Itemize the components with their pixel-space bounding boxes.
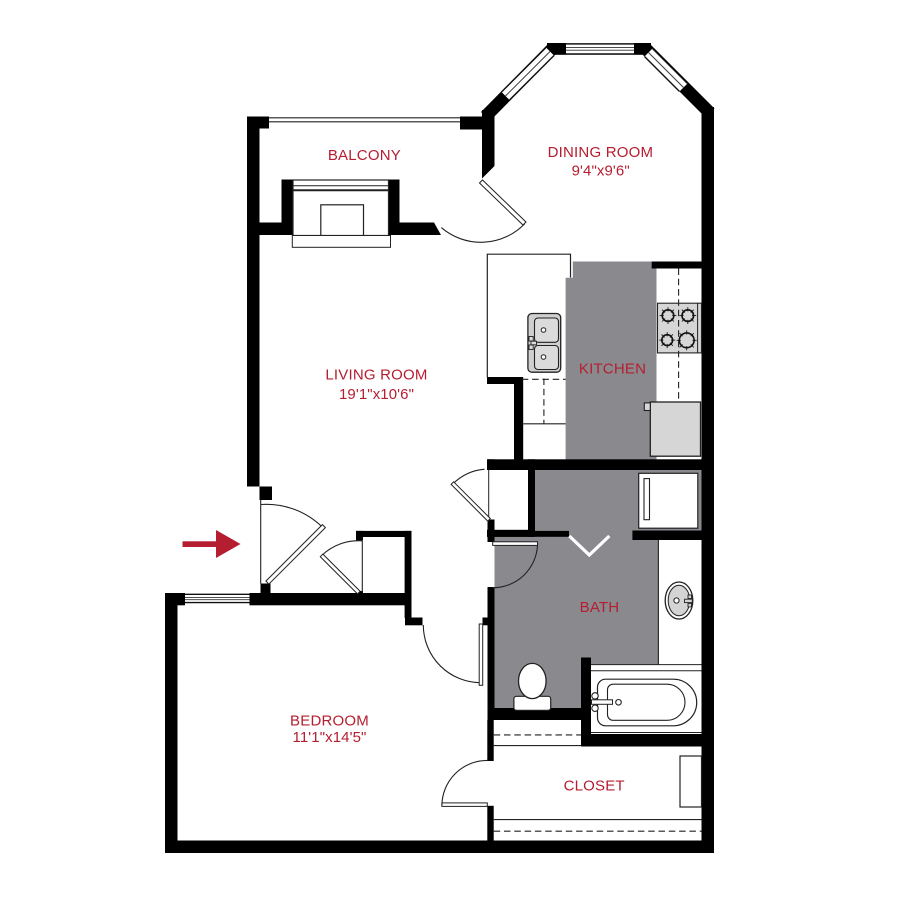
svg-text:BALCONY: BALCONY bbox=[328, 147, 401, 164]
svg-text:DINING ROOM: DINING ROOM bbox=[548, 144, 654, 161]
svg-text:9'4"x9'6": 9'4"x9'6" bbox=[572, 162, 630, 179]
svg-text:11'1"x14'5": 11'1"x14'5" bbox=[293, 729, 367, 746]
svg-text:KITCHEN: KITCHEN bbox=[579, 360, 646, 377]
svg-text:LIVING ROOM: LIVING ROOM bbox=[325, 366, 427, 383]
svg-text:CLOSET: CLOSET bbox=[564, 777, 625, 794]
svg-text:BEDROOM: BEDROOM bbox=[290, 713, 369, 730]
svg-text:BATH: BATH bbox=[580, 599, 620, 616]
svg-text:19'1"x10'6": 19'1"x10'6" bbox=[339, 386, 414, 403]
